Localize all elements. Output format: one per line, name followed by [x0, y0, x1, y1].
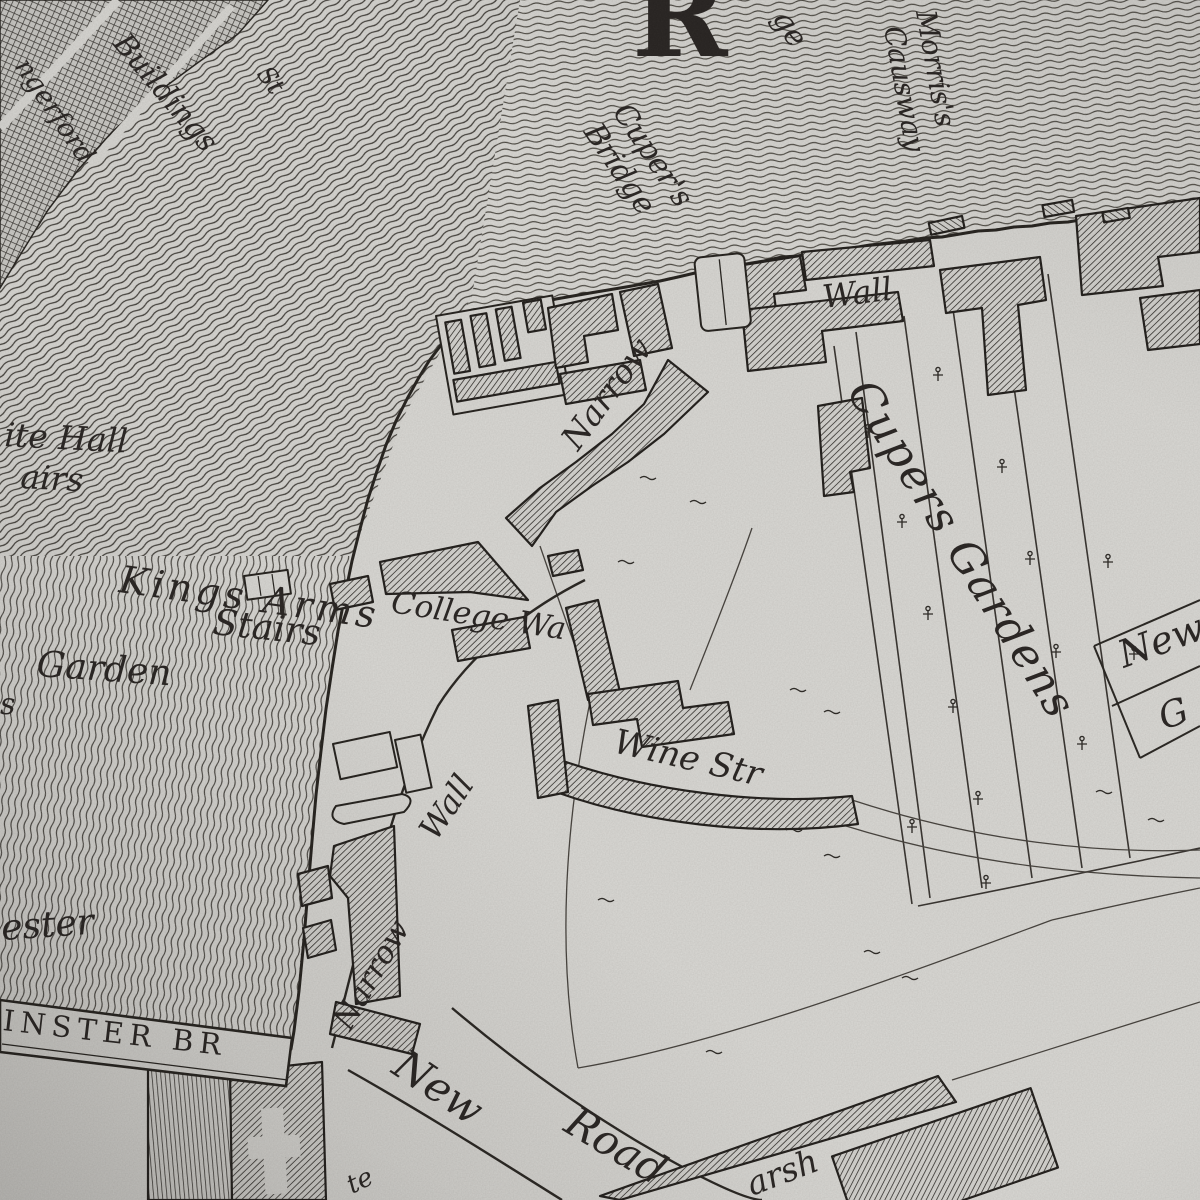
map-page: R Buildings ngerford St ge Cuper's Bridg… [0, 0, 1200, 1200]
map-engraving: R Buildings ngerford St ge Cuper's Bridg… [0, 0, 1200, 1200]
paper-grain [0, 0, 1200, 1200]
